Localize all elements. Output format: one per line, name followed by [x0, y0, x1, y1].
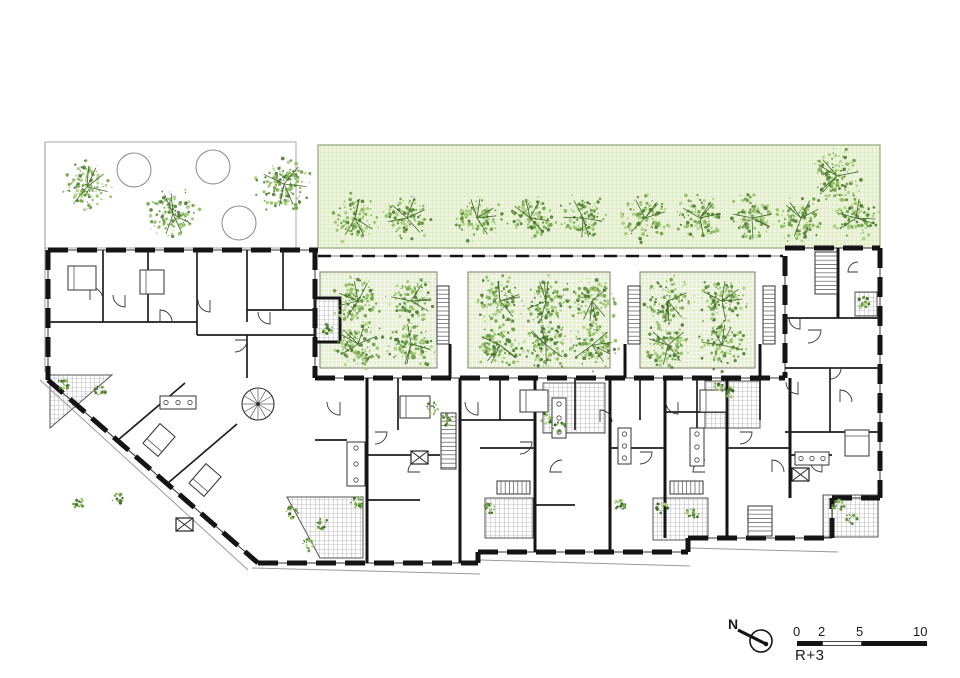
wall: [118, 383, 185, 440]
staircase: [628, 286, 640, 344]
staircase: [748, 506, 772, 536]
bed: [189, 464, 221, 497]
kitchen-counter: [618, 428, 631, 464]
door-arc: [258, 312, 270, 324]
level-label: R+3: [795, 647, 824, 664]
floor-plan-svg: [0, 0, 960, 678]
spiral-staircase: [242, 388, 274, 420]
door-arc: [375, 432, 387, 444]
terrace: [653, 498, 708, 540]
duct-shaft: [176, 518, 193, 531]
scale-tick-label: 10: [913, 624, 927, 639]
kitchen-counter: [160, 396, 196, 409]
door-arc: [772, 460, 784, 472]
scale-bar-segment: [822, 641, 862, 646]
shrub-icon: [614, 499, 626, 510]
bed: [845, 430, 869, 456]
bed: [700, 390, 726, 412]
door-arc: [786, 382, 798, 394]
kitchen-counter: [795, 452, 829, 465]
door-arc: [740, 432, 752, 444]
wall: [690, 548, 838, 552]
scale-tick-label: 2: [818, 624, 825, 639]
door-arc: [830, 368, 841, 379]
scale-bar-segment: [862, 641, 927, 646]
shrub-icon: [72, 498, 84, 509]
bed: [140, 270, 164, 294]
bed: [520, 390, 548, 412]
door-arc: [198, 300, 210, 312]
bed: [143, 424, 175, 457]
floor-plan-page: N 0 2 5 10 R+3: [0, 0, 960, 678]
door-arc: [848, 262, 858, 272]
kitchen-counter: [347, 442, 365, 486]
scale-tick-label: 0: [793, 624, 800, 639]
kitchen-counter: [690, 428, 704, 466]
scale-tick-label: 5: [856, 624, 863, 639]
staircase: [815, 252, 837, 294]
scale-bar-segment: [797, 641, 822, 646]
door-arc: [550, 460, 562, 472]
terrace: [855, 292, 877, 316]
bed: [68, 266, 96, 290]
bed: [400, 396, 430, 418]
staircase: [670, 481, 703, 494]
door-arc: [113, 295, 125, 307]
duct-shaft: [792, 468, 809, 481]
wall: [480, 560, 690, 566]
staircase: [763, 286, 775, 344]
shrub-icon: [112, 493, 124, 505]
north-compass-icon: [735, 623, 777, 659]
courtyards-layer: [320, 272, 755, 368]
terrace: [50, 375, 112, 428]
door-arc: [160, 310, 172, 322]
door-arc: [465, 402, 478, 415]
door-arc: [235, 340, 247, 352]
door-arc: [840, 390, 852, 402]
door-arc: [808, 330, 821, 343]
staircase: [437, 286, 449, 344]
door-arc: [789, 318, 800, 329]
wall: [252, 568, 480, 574]
staircase: [497, 481, 530, 494]
terrace: [485, 498, 533, 538]
door-arc: [640, 452, 652, 464]
duct-shaft: [411, 451, 428, 464]
door-arc: [327, 402, 340, 415]
terrace: [315, 298, 340, 342]
